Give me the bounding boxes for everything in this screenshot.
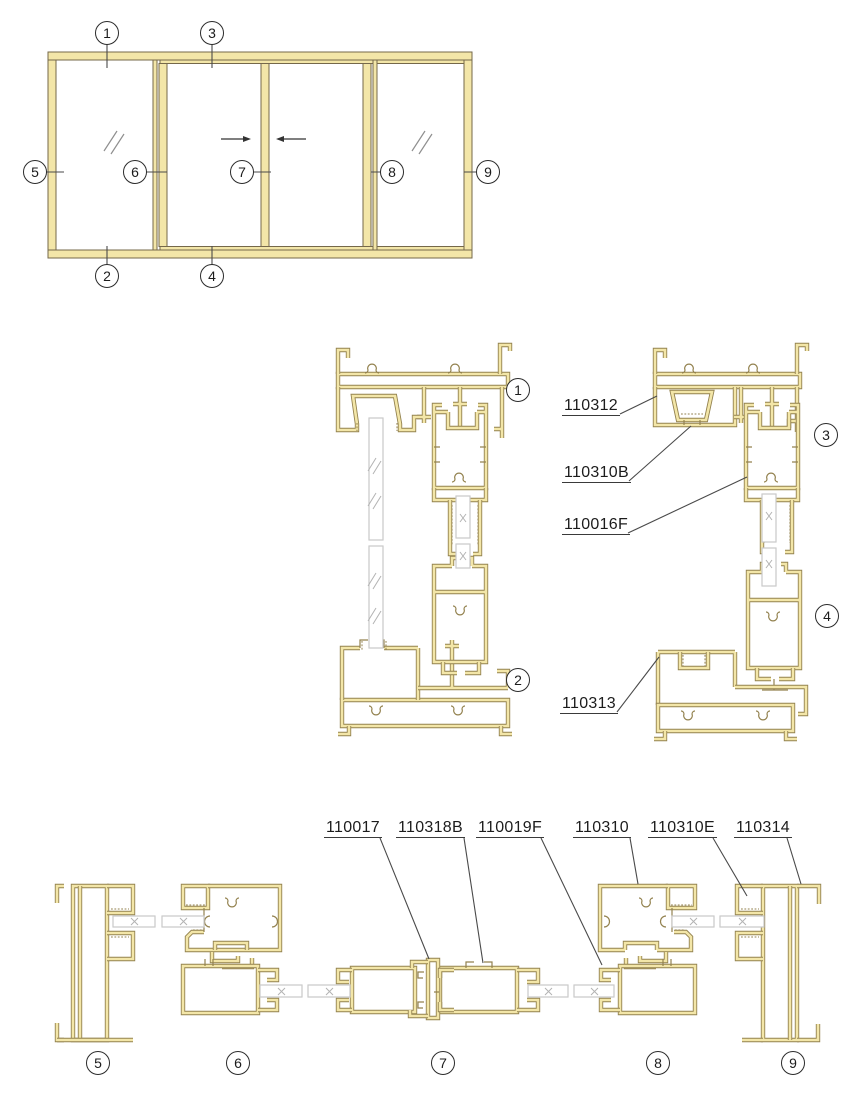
elevation-callout-8: 8 — [380, 160, 404, 184]
section-badge-5: 5 — [86, 1051, 110, 1075]
part-label-110016F: 110016F — [562, 517, 630, 535]
part-label-110310E: 110310E — [648, 820, 717, 838]
section-9-jamb-profile — [737, 886, 819, 1040]
section-2-sill-profile — [338, 558, 512, 734]
elevation-callout-9: 9 — [476, 160, 500, 184]
part-label-110019F: 110019F — [476, 820, 544, 838]
part-label-110313: 110313 — [560, 696, 618, 714]
part-label-110310: 110310 — [573, 820, 631, 838]
section-badge-1: 1 — [506, 378, 530, 402]
section-badge-7: 7 — [431, 1051, 455, 1075]
section-7-interlock-profile — [338, 960, 538, 1018]
elevation-callout-3: 3 — [200, 21, 224, 45]
elevation-callout-4: 4 — [200, 264, 224, 288]
section-badge-8: 8 — [646, 1051, 670, 1075]
elevation-callout-6: 6 — [123, 160, 147, 184]
part-label-110310B: 110310B — [562, 465, 631, 483]
elevation-callout-7: 7 — [230, 160, 254, 184]
section-1-head-profile — [338, 345, 510, 554]
section-badge-4: 4 — [815, 604, 839, 628]
section-4-sill-profile — [654, 564, 806, 739]
profile-catalog-page: 1 2 3 4 5 6 7 8 9 1 2 3 4 5 6 7 8 9 1103… — [0, 0, 850, 1093]
section-badge-3: 3 — [814, 423, 838, 447]
part-label-110312: 110312 — [562, 398, 620, 416]
elevation-callout-5: 5 — [23, 160, 47, 184]
window-elevation — [46, 44, 477, 265]
part-label-110017: 110017 — [324, 820, 382, 838]
section-badge-2: 2 — [506, 668, 530, 692]
elevation-callout-1: 1 — [95, 21, 119, 45]
section-3-head-profile — [655, 345, 807, 552]
elevation-callout-2: 2 — [95, 264, 119, 288]
section-5-jamb-profile — [57, 886, 133, 1040]
section-badge-9: 9 — [781, 1051, 805, 1075]
section-badge-6: 6 — [226, 1051, 250, 1075]
part-label-110318B: 110318B — [396, 820, 465, 838]
part-label-110314: 110314 — [734, 820, 792, 838]
